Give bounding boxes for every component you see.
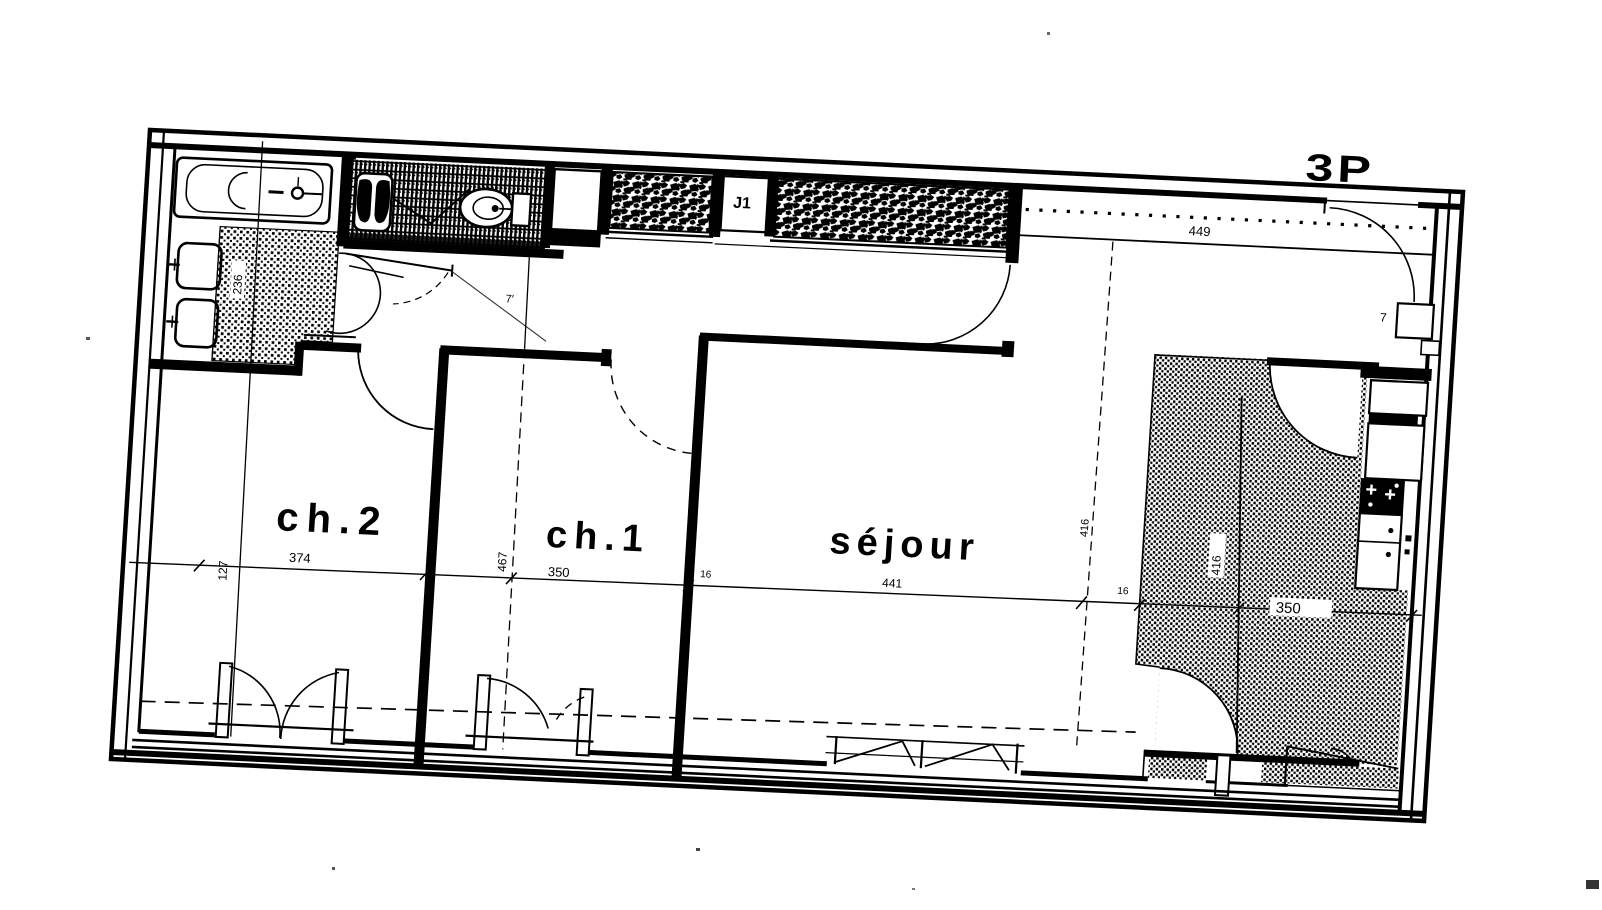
svg-text:127: 127 xyxy=(215,560,230,581)
svg-text:ch.2: ch.2 xyxy=(275,495,390,544)
svg-text:350: 350 xyxy=(1275,599,1301,617)
svg-text:7′: 7′ xyxy=(505,293,514,305)
svg-text:350: 350 xyxy=(547,564,570,580)
svg-text:467: 467 xyxy=(495,551,510,572)
svg-text:3P: 3P xyxy=(1305,147,1376,192)
svg-text:ch.1: ch.1 xyxy=(545,514,652,561)
svg-text:7: 7 xyxy=(1380,310,1388,324)
svg-text:374: 374 xyxy=(289,550,312,566)
svg-text:416: 416 xyxy=(1209,555,1224,576)
svg-text:236: 236 xyxy=(230,274,245,295)
svg-text:16: 16 xyxy=(700,569,712,581)
svg-text:16: 16 xyxy=(1117,586,1129,598)
svg-text:449: 449 xyxy=(1188,223,1211,239)
svg-text:J1: J1 xyxy=(733,195,752,213)
svg-text:441: 441 xyxy=(882,576,903,591)
svg-text:416: 416 xyxy=(1079,519,1092,538)
svg-text:séjour: séjour xyxy=(828,520,981,569)
